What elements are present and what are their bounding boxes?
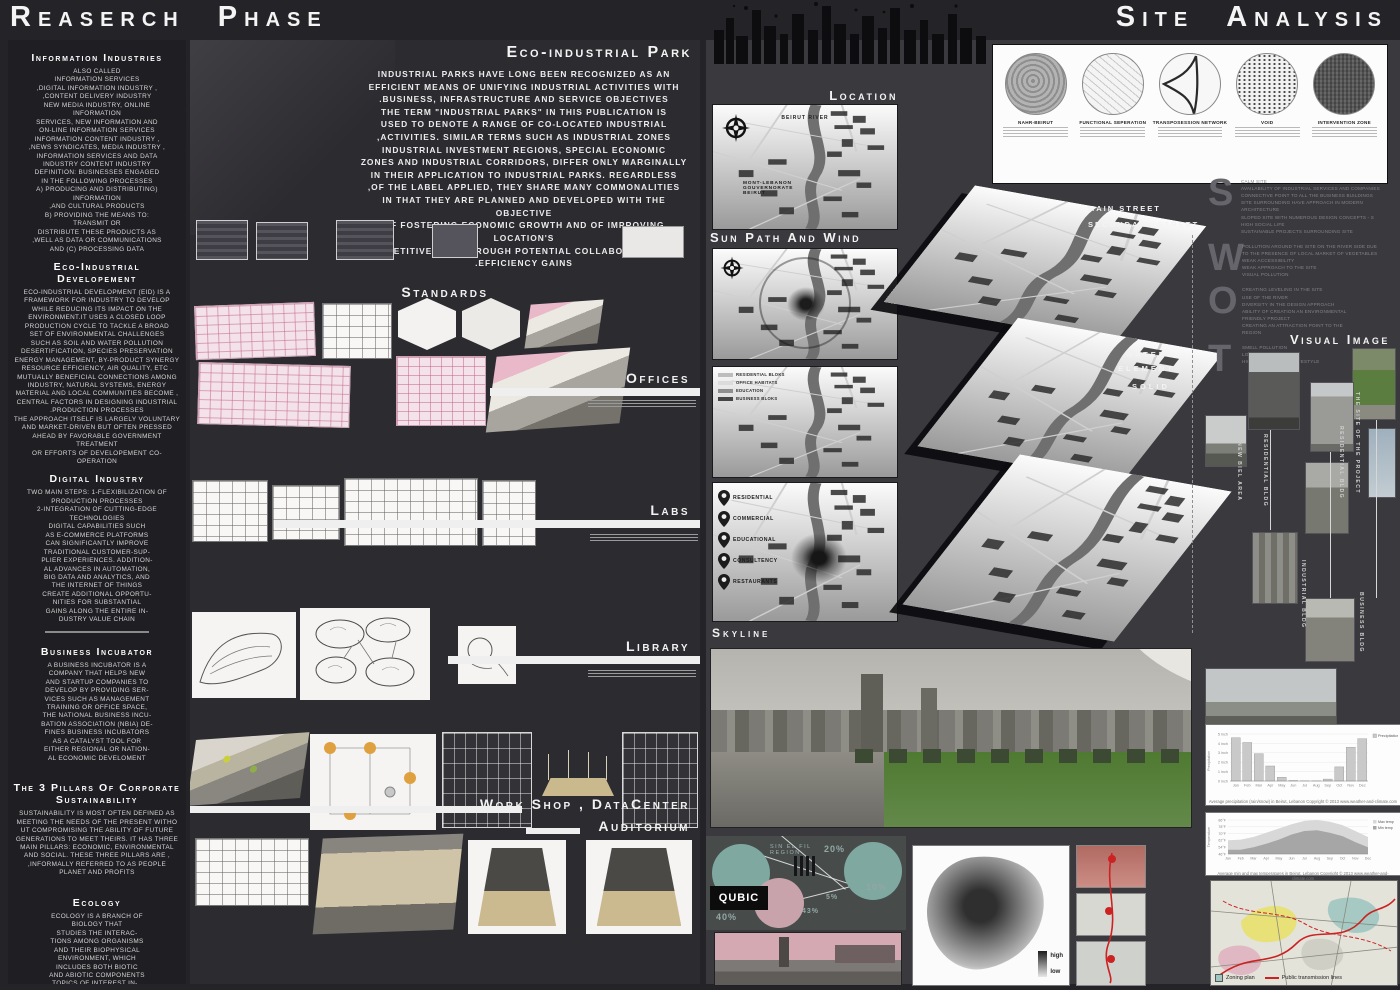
pct-40: 40%: [716, 912, 737, 922]
section-title-eco-industrial-developement: Eco-Industrial Developement: [12, 261, 182, 285]
left-board-title: Reaserch Phase: [10, 1, 328, 34]
nahr-beirut-map-circle: [1005, 53, 1067, 115]
canopy-leg-3: [588, 752, 589, 780]
left-sidebar: Information Industries ALSO CALLED INFOR…: [8, 40, 186, 984]
auditorium-room-1: [468, 840, 566, 934]
svg-text:Mar: Mar: [1250, 857, 1257, 861]
map-subtext-2: [1080, 127, 1145, 137]
flow-slide-3: [336, 220, 394, 260]
svg-text:Aug: Aug: [1313, 784, 1320, 788]
offices-caption-lines: [588, 400, 696, 409]
map-caption-4: VOID: [1229, 120, 1306, 125]
svg-text:Sep: Sep: [1324, 784, 1331, 788]
pin-row-consultency: CONSULTENCY: [718, 553, 778, 569]
labs-plan-2: [272, 485, 340, 540]
swot-weaknesses-row: W POLLUTION AROUND THE SITE ON THE RIVER…: [1208, 241, 1398, 279]
location-heading: Location: [712, 88, 898, 103]
svg-text:Feb: Feb: [1244, 784, 1251, 788]
library-sketch-2-drawing: [300, 608, 430, 700]
swot-letter-t: T: [1208, 342, 1242, 376]
svg-text:78°F: 78°F: [1218, 825, 1226, 829]
transmission-map-drawing: [1211, 881, 1398, 986]
legend-label-business-bloks: BUSINESS BLOKS: [736, 396, 777, 401]
svg-text:Oct: Oct: [1336, 784, 1343, 788]
skyline-heading: Skyline: [712, 626, 770, 640]
pin-icon-commercial: [718, 511, 730, 527]
legend-label-education: EDUCATION: [736, 388, 763, 393]
library-sketch-3-drawing: [458, 626, 516, 684]
pin-label-consultency: CONSULTENCY: [733, 558, 778, 564]
skyline-panorama-photo: [710, 648, 1192, 828]
sun-compass-icon: [718, 254, 746, 282]
svg-text:Dec: Dec: [1365, 857, 1372, 861]
map-caption-1: NAHR-BEIRUT: [997, 120, 1074, 125]
labs-caption-lines: [590, 534, 698, 543]
qubic-logo: QUBIC: [710, 886, 768, 910]
network-river-lines: [1160, 54, 1221, 115]
svg-text:Jun: Jun: [1290, 784, 1296, 788]
photo-sky-pole: [1368, 428, 1396, 498]
labs-plan-1: [192, 480, 268, 542]
svg-text:3 inch: 3 inch: [1218, 751, 1228, 755]
water-element-label: WATER ELEMENT: [1118, 348, 1175, 377]
svg-text:Nov: Nov: [1347, 784, 1354, 788]
heat-blob: [920, 848, 1052, 975]
photo-connector-2: [1330, 452, 1331, 598]
route-strip-column: [1076, 845, 1146, 986]
svg-text:62°F: 62°F: [1218, 839, 1226, 843]
offices-floorplan-pink-1: [194, 302, 316, 360]
red-route-overlay: [1076, 845, 1146, 986]
pin-label-residential: RESIDENTIAL: [733, 495, 773, 501]
center-column: Eco-industrial Park INDUSTRIAL PARKS HAV…: [190, 40, 700, 984]
canopy-leg-2: [568, 750, 569, 780]
section-body-information-industries: ALSO CALLED INFORMATION SERVICES ,DIGITA…: [12, 68, 182, 254]
pin-label-educational: EDUCATIONAL: [733, 537, 776, 543]
photo-caption-business: BUSINESS BLDG: [1358, 592, 1364, 653]
section-body-3-pillars: SUSTAINABILITY IS MOST OFTEN DEFINED AS …: [12, 810, 182, 878]
zoning-legend-row-4: BUSINESS BLOKS: [718, 396, 785, 401]
section-body-ecology: ECOLOGY IS A BRANCH OF BIOLOGY THAT STUD…: [12, 913, 182, 984]
workshop-iso-render: [190, 732, 309, 806]
precip-ylabel: Precipitation: [1207, 751, 1211, 771]
canopy-leg-1: [548, 754, 549, 780]
canopy-deck: [542, 778, 614, 796]
pink-pano-tower: [779, 937, 789, 967]
analysis-maps-panel: NAHR-BEIRUT FUNCTIONAL SEPERATION TRANSP…: [992, 44, 1388, 184]
transposession-network-map-circle: [1159, 53, 1221, 115]
svg-text:Jun: Jun: [1289, 857, 1295, 861]
workshop-accent-2: [249, 765, 257, 772]
photo-towers-2: [1252, 532, 1298, 604]
swot-letter-w: W: [1208, 241, 1242, 279]
transmission-legend: Zoning plan Public transmission lines: [1215, 974, 1342, 982]
bottom-floorplan-card: [195, 838, 309, 906]
legend-swatch-education: [718, 389, 733, 393]
labs-plan-3: [344, 478, 478, 546]
temp-ylabel: Temperature: [1207, 827, 1211, 847]
landuse-map: RESIDENTIAL COMMERCIAL EDUCATIONAL CONSU…: [712, 482, 898, 622]
map-subtext-1: [1003, 127, 1068, 137]
svg-text:54°F: 54°F: [1218, 846, 1226, 850]
offices-iso-hex-1: [398, 298, 456, 350]
svg-text:Mar: Mar: [1256, 784, 1263, 788]
pct-20: 20%: [824, 844, 845, 854]
axon-guide-dashed-line: [1192, 235, 1193, 633]
map-caption-2: FUNCTIONAL SEPERATION: [1074, 120, 1151, 125]
pink-street-panorama: [714, 932, 902, 986]
svg-text:Jul: Jul: [1302, 784, 1307, 788]
auditorium-divider-bar: [526, 828, 580, 834]
temperature-chart-card: Temperature 46°F54°F62°F70°F78°F86°FJanF…: [1205, 812, 1400, 876]
swot-strengths-text: CALM SITE AVAILABILITY OF INDUSTRIAL SER…: [1241, 176, 1398, 235]
site-focus-blob: [791, 533, 847, 583]
swot-letter-s: S: [1208, 176, 1241, 235]
svg-text:5 inch: 5 inch: [1218, 732, 1228, 736]
legend-transmission: Public transmission lines: [1265, 975, 1342, 981]
precipitation-chart: 0 inch1 inch2 inch3 inch4 inch5 inchJanF…: [1208, 727, 1398, 793]
pin-icon-consultency: [718, 553, 730, 569]
offices-floorplan-pink-3: [396, 356, 486, 426]
svg-text:Sep: Sep: [1327, 857, 1333, 861]
svg-text:Precipitation: Precipitation: [1378, 734, 1398, 738]
offices-iso-hex-2: [462, 298, 520, 350]
map-subtext-4: [1235, 127, 1300, 137]
svg-text:Oct: Oct: [1340, 857, 1346, 861]
qubic-infographic: SIN EL FIL REGION 20% 10% 5% 43% 40% QUB…: [706, 836, 906, 930]
svg-text:Apr: Apr: [1263, 857, 1269, 861]
skyline-splatter-graphic: [706, 0, 996, 64]
heat-legend-high: high: [1050, 953, 1063, 959]
section-body-business-incubator: A BUSINESS INCUBATOR IS A COMPANY THAT H…: [12, 662, 182, 763]
legend-label-office-habitats: OFFICE HABITATS: [736, 380, 778, 385]
svg-text:Min temp: Min temp: [1378, 826, 1393, 830]
panorama-tower: [861, 674, 883, 759]
flow-slide-1: [196, 220, 248, 260]
svg-text:70°F: 70°F: [1218, 832, 1226, 836]
swot-weaknesses-text: POLLUTION AROUND THE SITE ON THE RIVER S…: [1242, 241, 1377, 279]
svg-text:1 inch: 1 inch: [1218, 770, 1228, 774]
legend-swatch-office-habitats: [718, 381, 733, 385]
zoning-legend-row-1: RESIDENTIAL BLOKS: [718, 372, 785, 377]
datacenter-elevation-2: [622, 732, 698, 828]
flow-slide-2: [256, 222, 308, 260]
map-subtext-5: [1312, 127, 1377, 137]
swot-opportunities-text: CREATING LEVELING IN THE SITE USE OF THE…: [1242, 284, 1346, 336]
governorate-label: MONT-LEBANON GOUVERNORATE BEIRUT: [743, 181, 793, 196]
digital-industry-collage-image: [45, 631, 149, 633]
zoning-legend: RESIDENTIAL BLOKS OFFICE HABITATS EDUCAT…: [718, 372, 785, 404]
pin-icon-restaurants: [718, 574, 730, 590]
svg-text:Aug: Aug: [1314, 857, 1320, 861]
labs-label: Labs: [650, 502, 690, 518]
legend-swatch-business-bloks: [718, 397, 733, 401]
heat-legend-gradient-bar: [1038, 951, 1047, 977]
swot-letter-o: O: [1208, 284, 1242, 336]
region-label: SIN EL FIL REGION: [770, 844, 812, 856]
landuse-legend: RESIDENTIAL COMMERCIAL EDUCATIONAL CONSU…: [718, 490, 778, 595]
photo-caption-residential-1: RESIDENTIAL BLDG: [1262, 434, 1268, 507]
analysis-map-item-5: INTERVENTION ZONE: [1306, 53, 1383, 179]
functional-seperation-map-circle: [1082, 53, 1144, 115]
svg-text:4 inch: 4 inch: [1218, 742, 1228, 746]
panorama-road: [711, 752, 884, 827]
svg-text:Apr: Apr: [1267, 784, 1274, 788]
auditorium-room-1-interior: [478, 848, 556, 927]
section-title-digital-industry: Digital Industry: [12, 473, 182, 485]
photo-residential-1: [1310, 382, 1354, 452]
offices-floorplan-pink-2: [197, 362, 351, 428]
section-title-ecology: Ecology: [12, 897, 182, 909]
library-sketch-1: [192, 612, 296, 698]
zoning-legend-row-2: OFFICE HABITATS: [718, 380, 785, 385]
void-map-circle: [1236, 53, 1298, 115]
photo-caption-residential-2: RESIDENTIAL BLDG: [1338, 426, 1344, 499]
pin-row-restaurants: RESTAURANTS: [718, 574, 778, 590]
precipitation-caption: Average precipitation (rain/snow) in Bei…: [1208, 799, 1398, 804]
zoning-map: RESIDENTIAL BLOKS OFFICE HABITATS EDUCAT…: [712, 366, 898, 478]
workshop-room-iso: [313, 834, 464, 935]
photo-caption-site-of-project: THE SITE OF THE PROJECT: [1354, 392, 1360, 494]
photo-connector-3: [1376, 420, 1377, 598]
analysis-map-item-4: VOID: [1229, 53, 1306, 179]
photo-caption-new-biel: NEW BIEL AREA: [1236, 442, 1242, 501]
visual-image-heading: Visual Image: [1290, 332, 1390, 347]
canopy-structure-image: [542, 754, 614, 796]
transmission-swatch: [1265, 977, 1279, 979]
pct-10: 10%: [866, 882, 887, 892]
auditorium-room-2: [586, 840, 692, 934]
workshop-flowchart-card: [310, 734, 436, 830]
flowchart-strip: [194, 216, 694, 270]
canopy-leg-4: [606, 756, 607, 780]
pct-43: 43%: [802, 908, 819, 915]
location-map: BEIRUT RIVER MONT-LEBANON GOUVERNORATE B…: [712, 104, 898, 230]
photo-caption-industrial: INDUSTRIAL BLDG: [1300, 560, 1306, 628]
library-divider-bar: [448, 656, 700, 664]
panorama-trees: [855, 749, 1191, 763]
pin-row-educational: EDUCATIONAL: [718, 532, 778, 548]
section-title-information-industries: Information Industries: [12, 52, 182, 64]
library-caption-lines: [588, 670, 696, 679]
sun-path-heading: Sun Path And Wind: [710, 230, 861, 245]
pin-icon-educational: [718, 532, 730, 548]
pin-label-commercial: COMMERCIAL: [733, 516, 774, 522]
svg-text:Feb: Feb: [1238, 857, 1244, 861]
transmission-label: Public transmission lines: [1282, 975, 1342, 981]
offices-iso-render-small: [524, 300, 603, 349]
transmission-map: Zoning plan Public transmission lines: [1210, 880, 1398, 986]
svg-text:2 inch: 2 inch: [1218, 761, 1228, 765]
main-street-label: MAIN STREET: [1088, 204, 1161, 213]
heat-legend-labels: high low: [1050, 953, 1063, 975]
pink-pano-trees: [835, 945, 895, 963]
temperature-chart: 46°F54°F62°F70°F78°F86°FJanFebMarAprMayJ…: [1208, 815, 1398, 865]
library-sketch-3: [458, 626, 516, 684]
sun-path-map: [712, 248, 898, 360]
analysis-map-item-1: NAHR-BEIRUT: [997, 53, 1074, 179]
workshop-flowchart-drawing: [310, 734, 436, 830]
photo-tower-1: [1248, 352, 1300, 430]
analysis-map-item-2: FUNCTIONAL SEPERATION: [1074, 53, 1151, 179]
map-caption-3: TRANSPOSESSION NETWORK: [1151, 120, 1228, 125]
pct-5: 5%: [826, 894, 838, 901]
photo-connector-1: [1270, 430, 1271, 530]
standards-heading: Standards: [190, 284, 700, 300]
section-title-3-pillars: The 3 Pillars Of Corporate Sustainabilit…: [12, 782, 182, 806]
legend-swatch-residential-bloks: [718, 373, 733, 377]
legend-label-residential-bloks: RESIDENTIAL BLOKS: [736, 372, 785, 377]
svg-text:May: May: [1276, 857, 1283, 861]
svg-text:Max temp: Max temp: [1378, 820, 1394, 824]
info-bars-glyph: [794, 856, 818, 876]
zoning-plan-label: Zoning plan: [1226, 975, 1255, 981]
pin-row-commercial: COMMERCIAL: [718, 511, 778, 527]
photo-building-2: [1305, 598, 1355, 662]
offices-label: Offices: [626, 370, 690, 386]
auditorium-room-2-interior: [597, 848, 682, 927]
flow-slide-4: [432, 224, 478, 258]
labs-plan-4: [482, 480, 536, 546]
eco-industrial-park-title: Eco-industrial Park: [506, 44, 692, 62]
right-board-title: Site Analysis: [1116, 1, 1388, 34]
heat-legend-low: low: [1050, 969, 1063, 975]
datacenter-elevation-1: [442, 732, 532, 828]
photo-wide-panorama: [1205, 668, 1337, 730]
intervention-zone-map-circle: [1313, 53, 1375, 115]
precipitation-chart-card: Precipitation 0 inch1 inch2 inch3 inch4 …: [1205, 724, 1400, 806]
offices-divider-bar: [490, 388, 700, 396]
legend-zoning-plan: Zoning plan: [1215, 974, 1255, 982]
workshop-accent-1: [223, 755, 231, 762]
library-label: Library: [626, 638, 690, 654]
auditorium-label: Auditorium: [598, 818, 690, 834]
zoning-legend-row-3: EDUCATION: [718, 388, 785, 393]
section-body-digital-industry: TWO MAIN STEPS: 1-FLEXIBILIZATION OF PRO…: [12, 489, 182, 624]
svg-text:0 inch: 0 inch: [1218, 779, 1228, 783]
panorama-field: [879, 752, 1191, 827]
map-caption-5: INTERVENTION ZONE: [1306, 120, 1383, 125]
svg-text:May: May: [1278, 784, 1285, 788]
heat-blob-map: high low: [912, 845, 1070, 986]
beirut-river-label: BEIRUT RIVER: [713, 115, 897, 121]
svg-text:Dec: Dec: [1359, 784, 1366, 788]
analysis-map-item-3: TRANSPOSESSION NETWORK: [1151, 53, 1228, 179]
zoning-swatch: [1215, 974, 1223, 982]
swot-strengths-row: S CALM SITE AVAILABILITY OF INDUSTRIAL S…: [1208, 176, 1398, 235]
svg-text:Nov: Nov: [1352, 857, 1359, 861]
pin-label-restaurants: RESTAURANTS: [733, 579, 777, 585]
library-sketch-2: [300, 608, 430, 700]
flow-slide-5: [622, 226, 684, 258]
offices-floorplan-white: [322, 303, 392, 359]
svg-text:Jan: Jan: [1225, 857, 1231, 861]
map-subtext-3: [1158, 127, 1223, 137]
workshop-divider-bar: [190, 806, 522, 813]
pin-icon-residential: [718, 490, 730, 506]
solid-label: SOLID: [1132, 382, 1170, 391]
heat-legend: high low: [1038, 951, 1063, 977]
labs-divider-bar: [275, 520, 700, 528]
section-body-eco-industrial-developement: ECO-INDUSTRIAL DEVELOPMENT (EID) IS A FR…: [12, 289, 182, 467]
svg-text:86°F: 86°F: [1218, 818, 1226, 822]
site-shadow-blob: [787, 287, 825, 321]
svg-text:Jan: Jan: [1233, 784, 1239, 788]
library-sketch-1-drawing: [192, 612, 296, 698]
swot-opportunities-row: O CREATING LEVELING IN THE SITE USE OF T…: [1208, 284, 1398, 336]
secondary-street-label: SECONDARY STREET: [1088, 220, 1199, 229]
pin-row-residential: RESIDENTIAL: [718, 490, 778, 506]
section-title-business-incubator: Business Incubator: [12, 646, 182, 658]
svg-text:Jul: Jul: [1302, 857, 1307, 861]
